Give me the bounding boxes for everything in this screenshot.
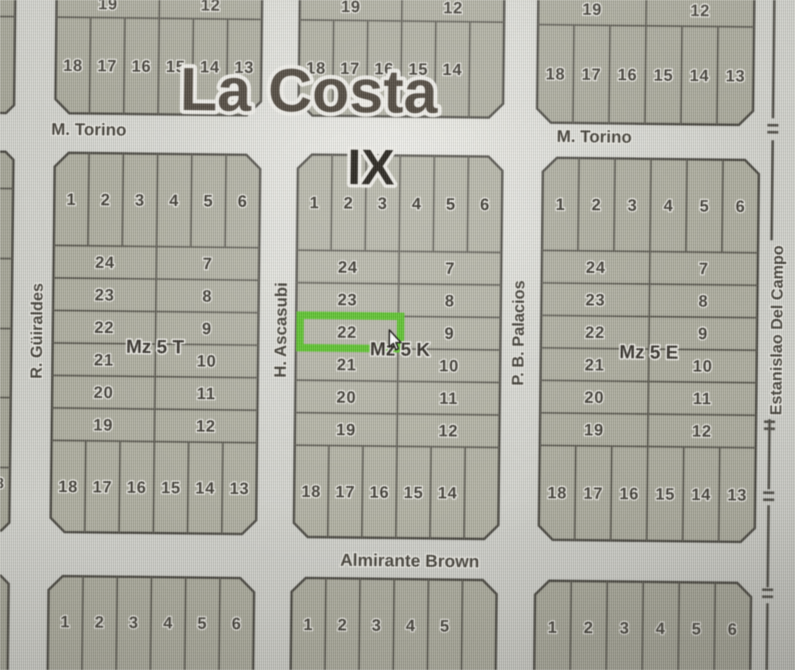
svg-text:19: 19: [93, 415, 113, 434]
svg-text:15: 15: [655, 485, 675, 504]
svg-text:8: 8: [445, 291, 455, 310]
svg-text:M. Torino: M. Torino: [51, 120, 126, 140]
svg-text:9: 9: [698, 324, 708, 343]
svg-text:16: 16: [617, 65, 637, 84]
svg-text:20: 20: [93, 383, 113, 402]
svg-text:Almirante Brown: Almirante Brown: [340, 550, 479, 572]
svg-text:4: 4: [163, 613, 173, 632]
svg-text:22: 22: [337, 323, 357, 342]
svg-text:15: 15: [403, 483, 423, 502]
svg-text:3: 3: [378, 194, 388, 213]
svg-text:1: 1: [309, 193, 319, 212]
svg-text:2: 2: [95, 613, 105, 632]
svg-text:10: 10: [439, 356, 459, 375]
svg-text:23: 23: [95, 285, 115, 304]
svg-text:16: 16: [131, 57, 151, 76]
svg-text:11: 11: [693, 389, 712, 408]
svg-text:9: 9: [444, 324, 454, 343]
svg-text:7: 7: [699, 259, 709, 278]
svg-text:12: 12: [443, 0, 463, 17]
svg-text:12: 12: [196, 417, 216, 436]
svg-text:21: 21: [337, 355, 357, 374]
svg-text:1: 1: [60, 612, 70, 631]
svg-text:15: 15: [161, 478, 181, 497]
svg-text:P. B. Palacios: P. B. Palacios: [509, 280, 528, 386]
svg-text:5: 5: [203, 191, 213, 210]
svg-text:15: 15: [653, 66, 673, 85]
svg-text:18: 18: [301, 482, 321, 501]
svg-text:12: 12: [690, 1, 710, 20]
svg-text:Mz 5 E: Mz 5 E: [619, 342, 678, 364]
svg-text:6: 6: [735, 197, 745, 216]
svg-text:16: 16: [619, 484, 639, 503]
svg-text:14: 14: [195, 479, 215, 498]
svg-text:7: 7: [203, 254, 213, 273]
svg-text:14: 14: [691, 485, 711, 504]
svg-text:13: 13: [725, 66, 745, 85]
svg-text:11: 11: [439, 389, 458, 408]
svg-text:18: 18: [547, 483, 567, 502]
svg-text:24: 24: [95, 253, 115, 272]
svg-text:8: 8: [202, 287, 212, 306]
svg-text:17: 17: [581, 65, 601, 84]
svg-text:22: 22: [94, 318, 114, 337]
svg-text:10: 10: [693, 357, 713, 376]
svg-text:12: 12: [692, 422, 712, 441]
svg-text:4: 4: [169, 191, 179, 210]
svg-text:17: 17: [335, 482, 355, 501]
svg-text:14: 14: [442, 60, 462, 79]
svg-text:21: 21: [585, 355, 605, 374]
svg-text:4: 4: [406, 616, 416, 635]
svg-text:2: 2: [344, 193, 354, 212]
svg-text:5: 5: [446, 195, 456, 214]
svg-text:2: 2: [591, 195, 601, 214]
svg-text:3: 3: [0, 475, 4, 492]
svg-text:23: 23: [585, 290, 605, 309]
svg-text:17: 17: [97, 56, 117, 75]
svg-text:4: 4: [656, 619, 666, 638]
svg-text:13: 13: [229, 479, 249, 498]
svg-text:16: 16: [127, 478, 147, 497]
svg-text:1: 1: [303, 615, 313, 634]
svg-text:5: 5: [440, 617, 450, 636]
svg-text:24: 24: [586, 258, 606, 277]
svg-text:6: 6: [480, 195, 490, 214]
svg-text:4: 4: [663, 196, 673, 215]
svg-text:19: 19: [582, 0, 602, 19]
svg-text:18: 18: [545, 64, 565, 83]
svg-text:5: 5: [692, 619, 702, 638]
svg-text:Mz 5 T: Mz 5 T: [126, 337, 185, 359]
svg-text:11: 11: [197, 384, 216, 403]
svg-text:5: 5: [699, 197, 709, 216]
svg-text:20: 20: [584, 388, 604, 407]
svg-text:1: 1: [66, 190, 76, 209]
svg-text:20: 20: [336, 388, 356, 407]
svg-text:14: 14: [689, 66, 709, 85]
svg-text:18: 18: [58, 477, 78, 496]
svg-text:12: 12: [201, 0, 221, 15]
svg-text:21: 21: [94, 350, 114, 369]
svg-text:3: 3: [372, 616, 382, 635]
svg-text:9: 9: [202, 319, 212, 338]
svg-text:14: 14: [438, 483, 458, 502]
svg-text:17: 17: [92, 477, 112, 496]
svg-text:M. Torino: M. Torino: [557, 127, 632, 147]
svg-text:Estanislao Del Campo: Estanislao Del Campo: [767, 245, 787, 415]
svg-text:2: 2: [584, 618, 594, 637]
svg-text:6: 6: [232, 614, 242, 633]
svg-text:3: 3: [129, 613, 139, 632]
svg-text:22: 22: [585, 323, 605, 342]
svg-text:17: 17: [583, 484, 603, 503]
svg-text:23: 23: [337, 290, 357, 309]
svg-text:2: 2: [101, 190, 111, 209]
svg-text:19: 19: [584, 420, 604, 439]
svg-text:4: 4: [412, 194, 422, 213]
svg-text:7: 7: [445, 259, 455, 278]
svg-text:3: 3: [627, 196, 637, 215]
svg-text:6: 6: [238, 192, 248, 211]
svg-text:IX: IX: [347, 139, 395, 196]
svg-text:H. Ascasubi: H. Ascasubi: [271, 282, 291, 378]
svg-text:18: 18: [63, 56, 83, 75]
svg-text:10: 10: [197, 352, 217, 371]
svg-text:19: 19: [98, 0, 118, 14]
svg-text:16: 16: [369, 483, 389, 502]
svg-text:La Costa: La Costa: [180, 55, 439, 126]
svg-text:3: 3: [135, 191, 145, 210]
svg-text:R. Güiraldes: R. Güiraldes: [28, 283, 47, 379]
svg-text:2: 2: [337, 615, 347, 634]
svg-text:12: 12: [438, 421, 458, 440]
svg-text:1: 1: [555, 195, 565, 214]
svg-text:24: 24: [338, 258, 358, 277]
svg-text:19: 19: [341, 0, 361, 16]
svg-text:5: 5: [197, 614, 207, 633]
svg-text:19: 19: [336, 420, 356, 439]
svg-text:1: 1: [548, 618, 558, 637]
svg-text:13: 13: [727, 485, 747, 504]
svg-text:3: 3: [620, 619, 630, 638]
svg-text:8: 8: [698, 292, 708, 311]
svg-text:6: 6: [728, 620, 738, 639]
